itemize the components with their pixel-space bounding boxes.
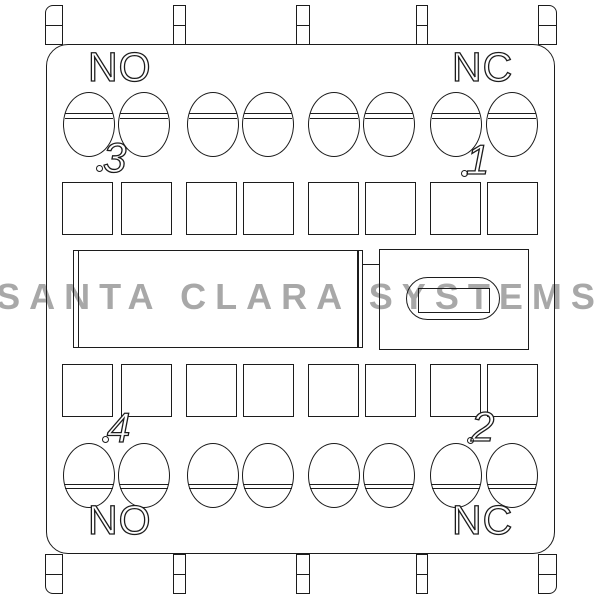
terminal-opening <box>430 182 481 235</box>
screw-terminal <box>308 443 360 508</box>
screw-slot-line <box>120 113 168 114</box>
contact-label-bottom-right: NC <box>452 500 513 541</box>
mounting-tab <box>173 5 186 45</box>
screw-slot-line <box>65 118 113 119</box>
label-plate-inner-line-right <box>357 251 358 347</box>
mounting-tab-divider-line <box>297 574 309 575</box>
terminal-opening <box>365 182 416 235</box>
mounting-tab-divider-line <box>297 25 309 26</box>
mounting-tab-divider-line <box>174 25 185 26</box>
mounting-tab-divider-line <box>46 574 62 575</box>
terminal-opening <box>487 364 538 417</box>
mounting-tab <box>416 554 428 594</box>
mounting-tab <box>45 554 63 594</box>
screw-terminal <box>187 92 239 157</box>
screw-slot-line <box>120 484 168 485</box>
terminal-marker-dot-bottom-left <box>102 436 109 443</box>
mounting-tab-divider-line <box>539 574 556 575</box>
terminal-marker-dot-top-left <box>96 165 103 172</box>
mounting-tab <box>296 554 310 594</box>
mounting-tab <box>45 5 63 45</box>
mounting-tab-divider-line <box>539 25 556 26</box>
screw-slot-line <box>310 113 358 114</box>
contact-label-bottom-left: NO <box>88 500 152 541</box>
label-plate-inner-line-left <box>78 251 79 347</box>
label-plate <box>73 250 363 348</box>
screw-slot-line <box>189 484 237 485</box>
terminal-opening <box>186 364 237 417</box>
screw-slot-line <box>244 484 292 485</box>
auxiliary-contact-block-drawing: SANTA CLARA SYSTEMS NO NC NO NC 3 1 4 2 <box>0 0 600 600</box>
screw-slot-line <box>189 113 237 114</box>
screw-slot-line <box>244 118 292 119</box>
terminal-opening <box>186 182 237 235</box>
screw-slot-line <box>65 484 113 485</box>
screw-slot-line <box>488 484 536 485</box>
screw-terminal <box>242 443 294 508</box>
terminal-opening <box>121 182 172 235</box>
terminal-number-bottom-left: 4 <box>107 407 130 449</box>
screw-slot-line <box>244 488 292 489</box>
screw-slot-line <box>432 113 480 114</box>
screw-slot-line <box>432 488 480 489</box>
screw-slot-line <box>244 113 292 114</box>
terminal-opening <box>308 364 359 417</box>
screw-slot-line <box>189 118 237 119</box>
screw-terminal <box>486 92 538 157</box>
mounting-tab-divider-line <box>417 25 427 26</box>
terminal-number-bottom-right: 2 <box>471 406 494 448</box>
connector-line <box>362 264 380 265</box>
actuator-slot <box>418 288 490 313</box>
screw-slot-line <box>432 118 480 119</box>
screw-slot-line <box>120 118 168 119</box>
mounting-tab <box>538 5 557 45</box>
terminal-opening <box>365 364 416 417</box>
screw-slot-line <box>65 488 113 489</box>
mounting-tab-divider-line <box>417 574 427 575</box>
terminal-opening <box>62 364 113 417</box>
screw-terminal <box>242 92 294 157</box>
screw-slot-line <box>488 118 536 119</box>
screw-terminal <box>363 443 415 508</box>
screw-slot-line <box>432 484 480 485</box>
terminal-number-top-right: 1 <box>466 139 489 181</box>
screw-slot-line <box>310 118 358 119</box>
screw-slot-line <box>310 488 358 489</box>
screw-slot-line <box>65 113 113 114</box>
mounting-tab-divider-line <box>174 574 185 575</box>
contact-label-top-right: NC <box>452 47 513 88</box>
mounting-tab <box>416 5 428 45</box>
screw-slot-line <box>310 484 358 485</box>
contact-label-top-left: NO <box>88 47 152 88</box>
screw-slot-line <box>365 118 413 119</box>
mounting-tab-divider-line <box>46 25 62 26</box>
terminal-opening <box>308 182 359 235</box>
screw-slot-line <box>365 488 413 489</box>
terminal-opening <box>243 364 294 417</box>
terminal-marker-dot-top-right <box>461 170 468 177</box>
screw-slot-line <box>189 488 237 489</box>
terminal-number-top-left: 3 <box>103 137 126 179</box>
screw-slot-line <box>365 484 413 485</box>
mounting-tab <box>296 5 310 45</box>
terminal-opening <box>487 182 538 235</box>
screw-slot-line <box>488 113 536 114</box>
mounting-tab <box>538 554 557 594</box>
screw-terminal <box>308 92 360 157</box>
mounting-tab <box>173 554 186 594</box>
terminal-opening <box>62 182 113 235</box>
screw-terminal <box>363 92 415 157</box>
terminal-marker-dot-bottom-right <box>467 437 474 444</box>
screw-slot-line <box>488 488 536 489</box>
screw-terminal <box>187 443 239 508</box>
screw-slot-line <box>365 113 413 114</box>
screw-slot-line <box>120 488 168 489</box>
terminal-opening <box>243 182 294 235</box>
